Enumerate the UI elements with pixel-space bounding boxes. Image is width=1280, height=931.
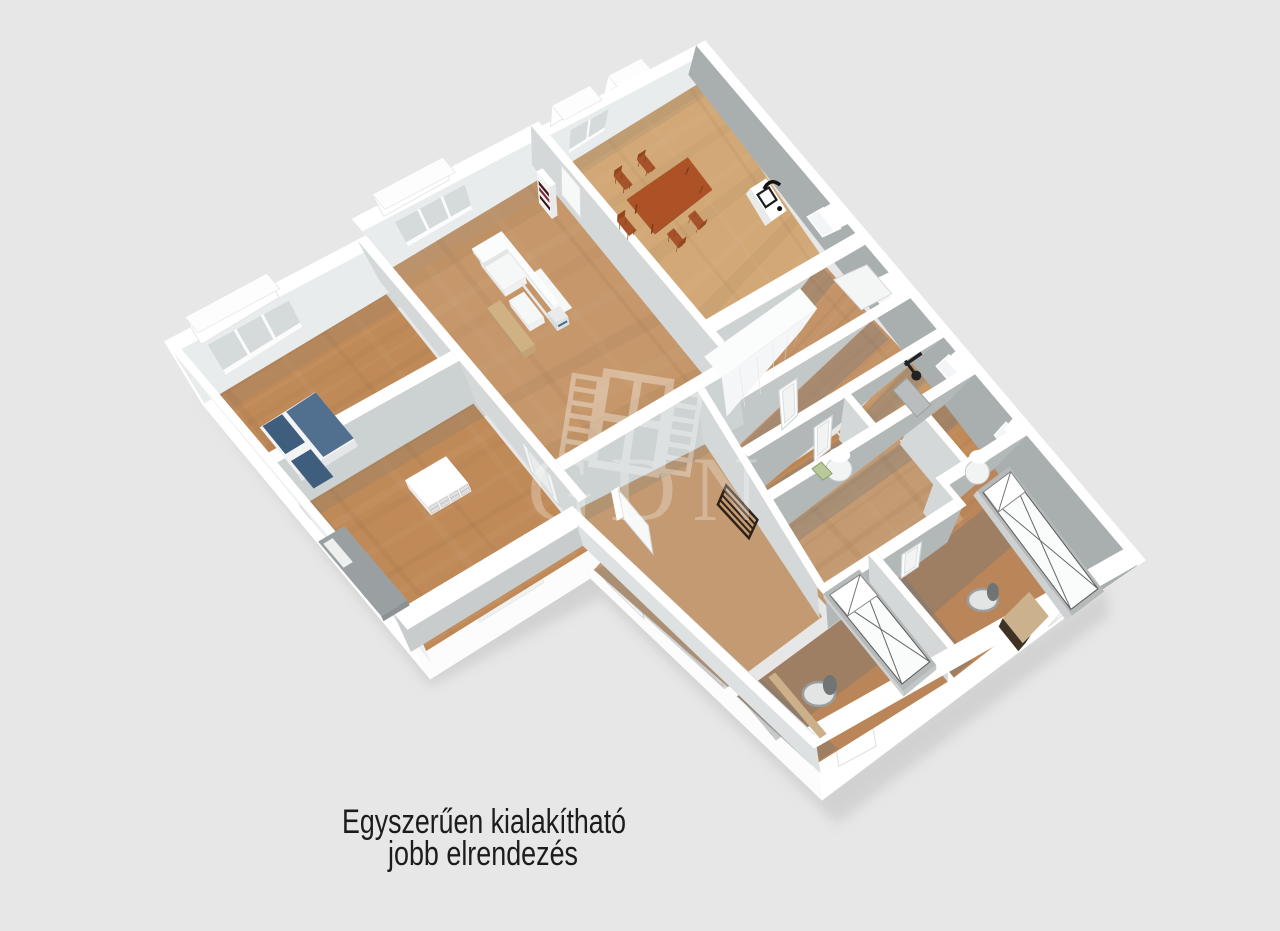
- svg-text:jobb elrendezés: jobb elrendezés: [387, 835, 578, 873]
- svg-text:GDN: GDN: [527, 438, 774, 540]
